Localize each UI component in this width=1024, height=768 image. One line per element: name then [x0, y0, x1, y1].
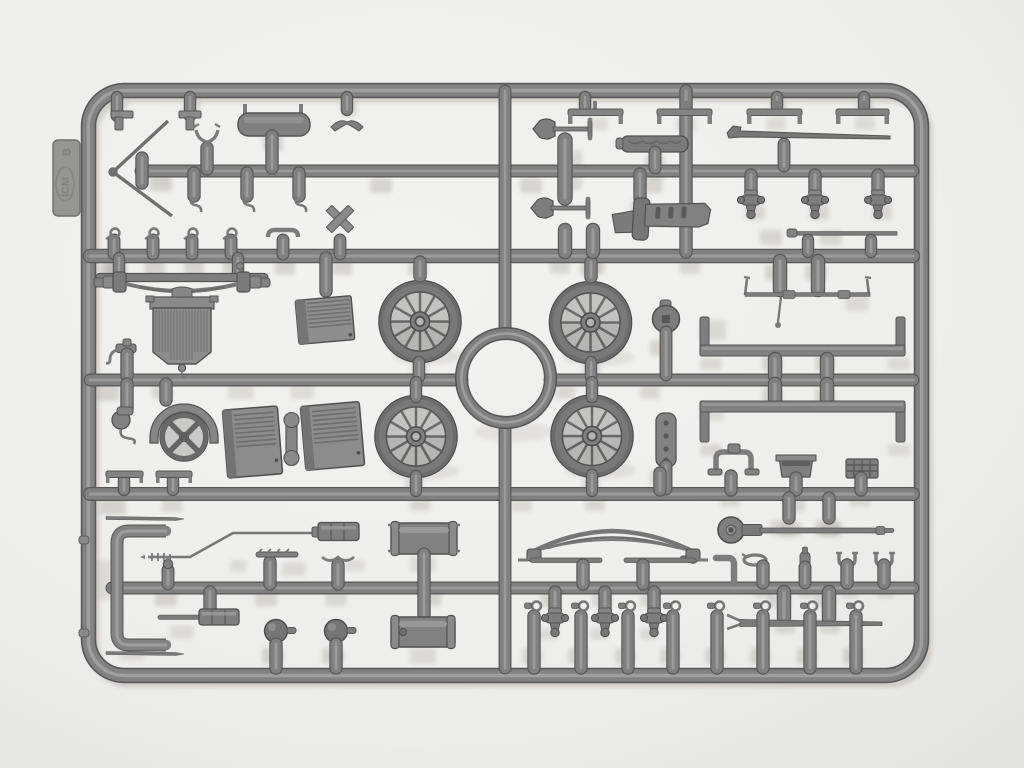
- svg-text:ICM: ICM: [60, 177, 72, 197]
- svg-text:B: B: [61, 148, 73, 156]
